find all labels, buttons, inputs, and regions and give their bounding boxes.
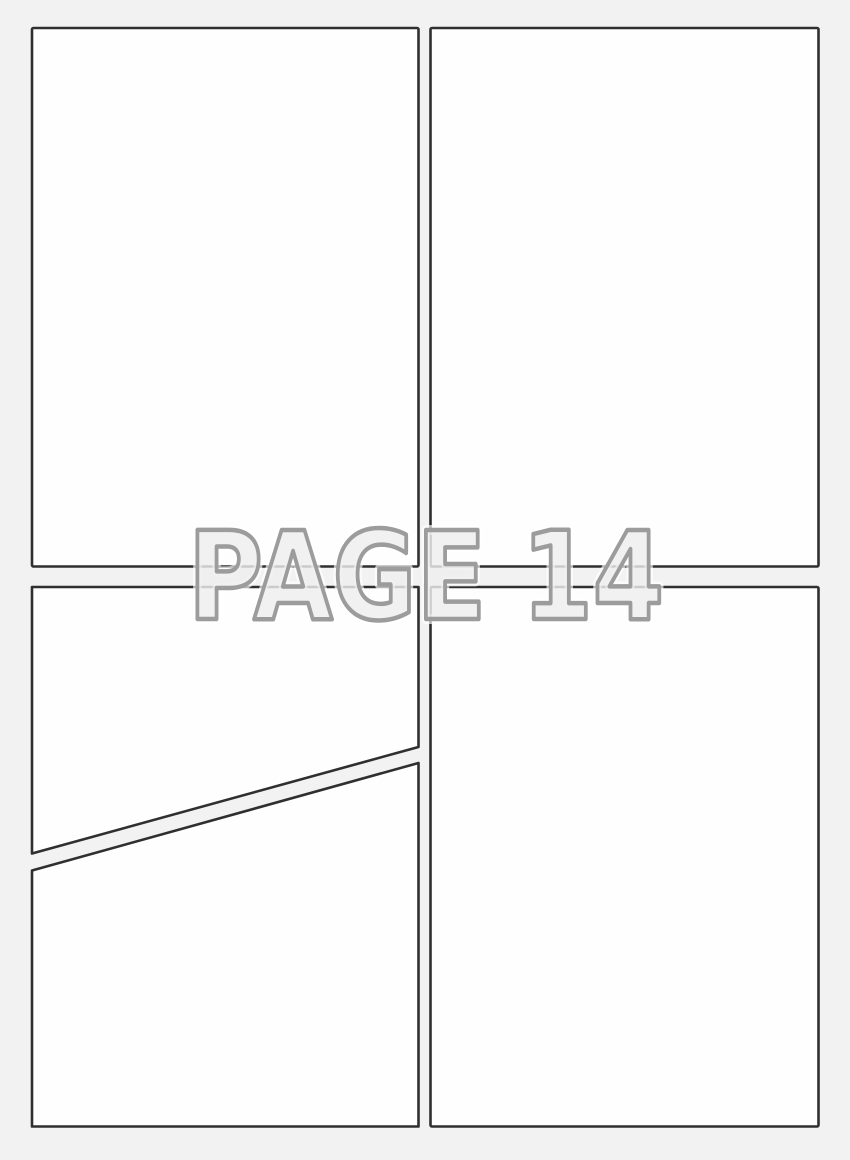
- watermark: PAGE 14 PAGE 14: [188, 506, 664, 648]
- watermark-text: PAGE 14: [188, 506, 664, 648]
- panel-bottom-right: [431, 587, 819, 1127]
- panel-top-right: [431, 28, 819, 567]
- panel-top-left: [32, 28, 419, 567]
- comic-page-canvas: PAGE 14 PAGE 14: [0, 0, 850, 1160]
- comic-template-page: PAGE 14 PAGE 14: [0, 0, 850, 1160]
